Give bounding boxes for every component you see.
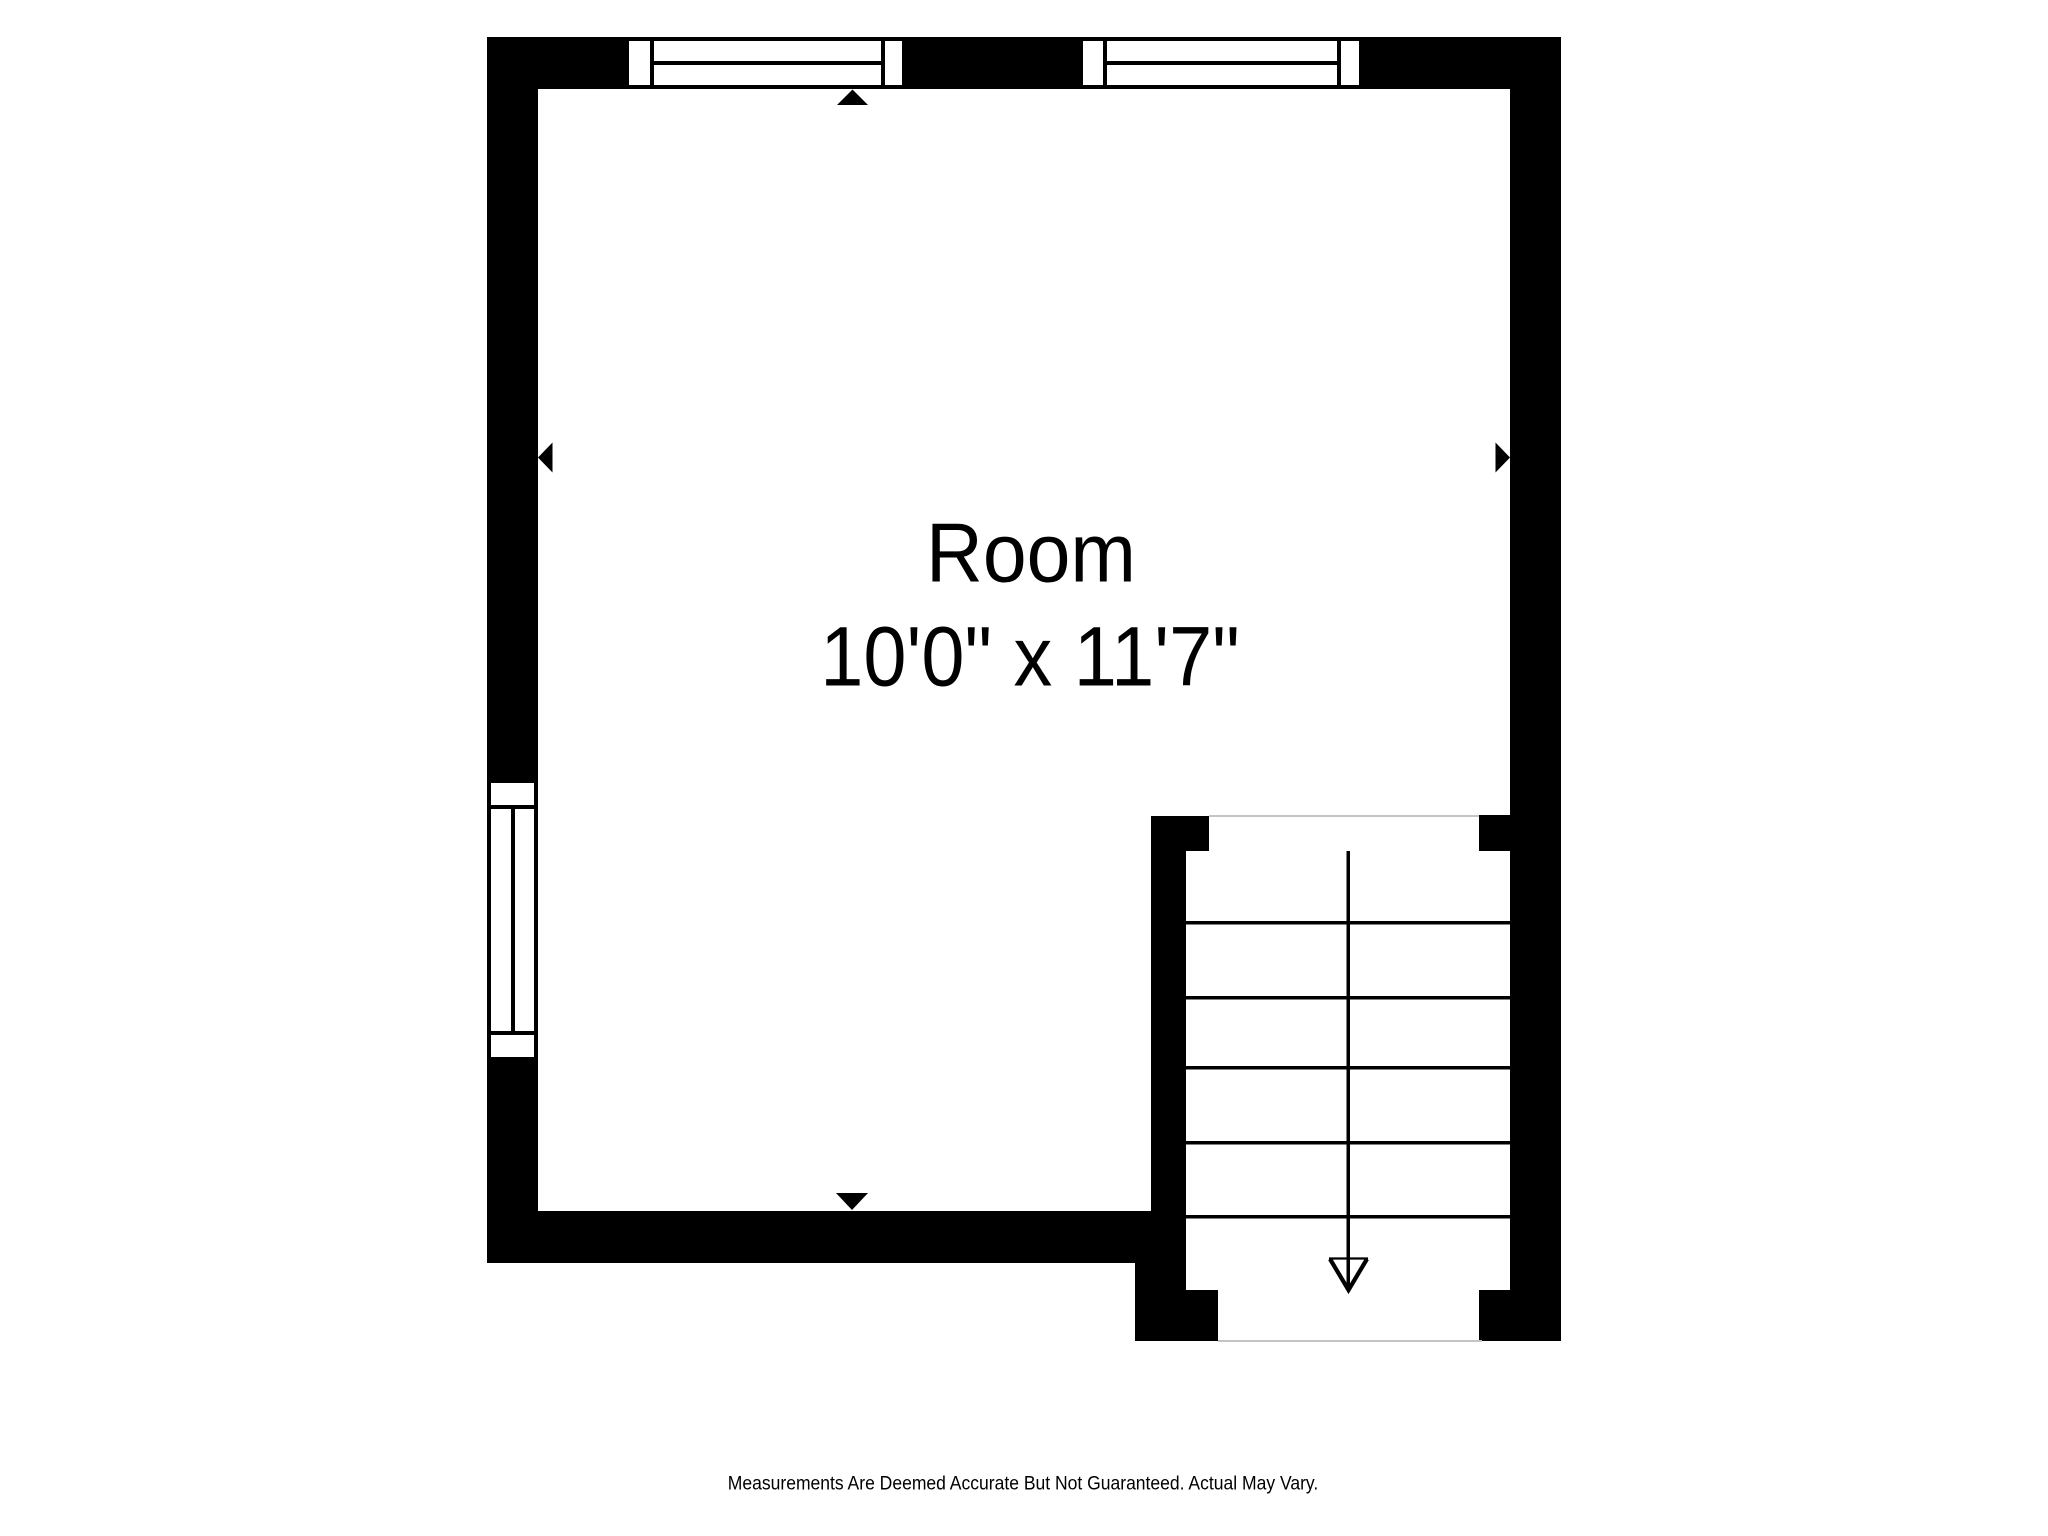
- svg-text:Measurements Are Deemed Accura: Measurements Are Deemed Accurate But Not…: [728, 1472, 1318, 1494]
- svg-text:Room: Room: [926, 506, 1136, 600]
- svg-text:10'0" x 11'7": 10'0" x 11'7": [820, 611, 1239, 705]
